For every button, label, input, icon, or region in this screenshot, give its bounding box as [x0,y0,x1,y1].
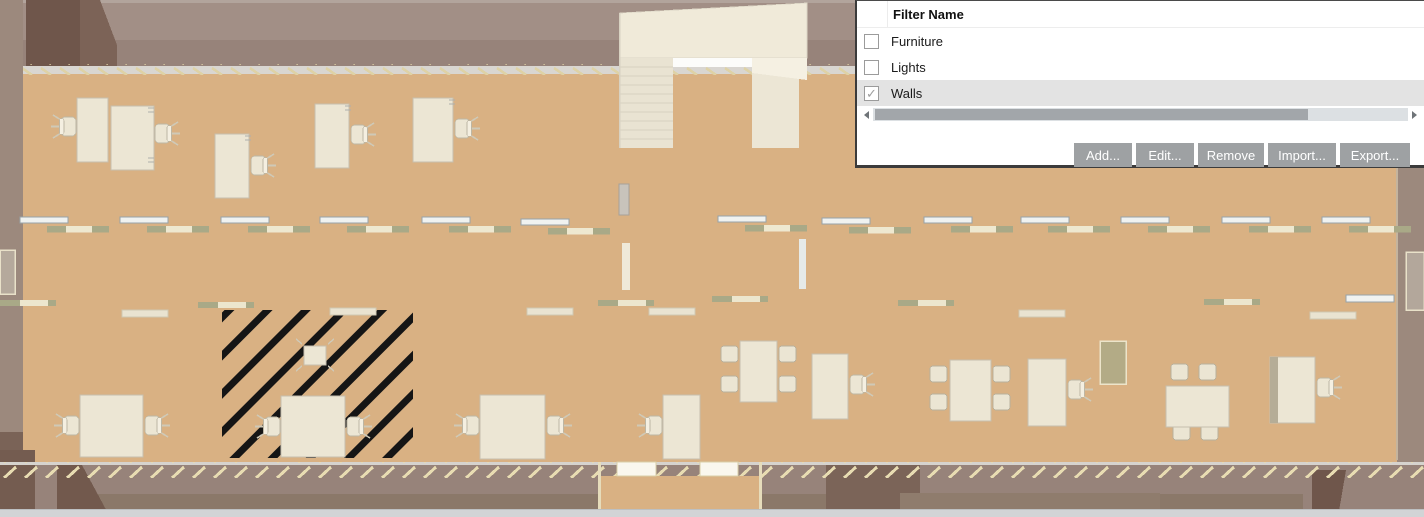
desk [281,396,345,457]
left-wall-door[interactable] [0,250,15,294]
h-scrollbar-thumb[interactable] [875,109,1308,120]
add-button[interactable]: Add... [1074,143,1132,167]
export-button[interactable]: Export... [1340,143,1410,167]
remove-button[interactable]: Remove [1198,143,1264,167]
vestibule-window [617,462,656,476]
view-horizontal-scrollbar[interactable] [0,509,1424,517]
vestibule-window [700,462,738,476]
check-icon: ✓ [866,87,877,100]
horizontal-scrollbar[interactable] [860,107,1421,122]
scrollbar-track[interactable] [873,108,1408,121]
desk [315,104,349,168]
filter-dialog: Filter Name Furniture Lights ✓ Walls Add… [855,0,1424,168]
desk [663,395,700,459]
furniture-checkbox[interactable] [864,34,879,49]
left-wall[interactable] [0,0,23,517]
walls-checkbox[interactable]: ✓ [864,86,879,101]
import-button[interactable]: Import... [1268,143,1336,167]
app-window: Filter Name Furniture Lights ✓ Walls Add… [0,0,1424,517]
desk [215,134,249,198]
filter-name-column-header: Filter Name [893,7,964,22]
arrow-right-icon [1412,111,1417,119]
filter-row-label: Furniture [891,34,943,49]
desk [77,98,108,162]
scroll-left-button[interactable] [860,107,873,122]
interior-column[interactable] [619,184,629,215]
arrow-left-icon [864,111,869,119]
desk [413,98,453,162]
filter-dialog-header: Filter Name [857,1,1424,28]
filter-row-label: Lights [891,60,926,75]
lights-checkbox[interactable] [864,60,879,75]
right-wall-door[interactable] [1406,252,1424,310]
desk [80,395,143,457]
desk [480,395,545,459]
filter-row-label: Walls [891,86,922,101]
filter-row-1[interactable]: Lights [857,54,1424,80]
dialog-button-bar: Add... Edit... Remove Import... Export..… [1074,143,1410,167]
wall-corner-block [26,0,80,66]
interior-wall-segment[interactable] [799,239,806,289]
desk [1028,359,1066,426]
desk [812,354,848,419]
desk [111,106,154,170]
display-board[interactable] [1100,341,1126,384]
filter-row-2[interactable]: ✓ Walls [857,80,1424,106]
interior-wall-segment[interactable] [622,243,630,290]
scroll-right-button[interactable] [1408,107,1421,122]
filter-row-0[interactable]: Furniture [857,28,1424,54]
edit-button[interactable]: Edit... [1136,143,1194,167]
